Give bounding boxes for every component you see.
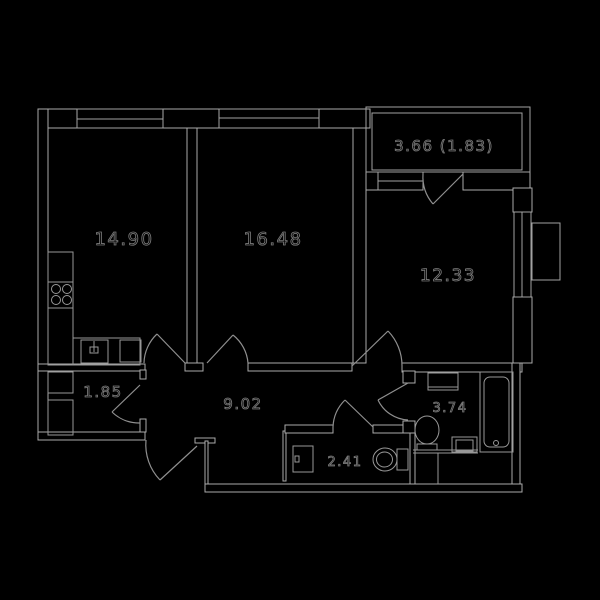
label-wc: 2.41 — [328, 455, 363, 470]
wall-right-mid — [513, 297, 532, 363]
wall-right-upper — [513, 188, 532, 212]
door-bathroom — [378, 383, 408, 420]
label-bedroom-2: 12.33 — [420, 266, 476, 286]
bathtub-icon — [480, 372, 513, 452]
exterior-ledge — [532, 223, 560, 280]
dishwasher-icon — [120, 340, 141, 362]
washing-machine-icon — [293, 446, 313, 472]
wall-hall-top-right — [402, 363, 522, 372]
door-balcony — [423, 174, 463, 204]
wall-hall-top-mid — [248, 363, 352, 371]
wall-top-right — [319, 109, 370, 128]
wall-bath-stub-lower — [403, 421, 415, 433]
kitchen-sink-icon — [81, 340, 108, 363]
label-bathroom: 3.74 — [433, 401, 468, 416]
label-hallway: 9.02 — [223, 395, 262, 413]
wall-storage-right-upper — [140, 370, 146, 379]
wall-top-mid — [163, 109, 219, 128]
wall-bedroom-bedroom2 — [353, 128, 366, 363]
label-bedroom: 16.48 — [243, 229, 302, 250]
label-kitchen-living-room: 14.90 — [94, 229, 153, 250]
stove-icon — [52, 285, 72, 305]
door-entry — [146, 440, 197, 480]
wall-bath-stub-upper — [403, 371, 415, 383]
wall-left-outer — [38, 109, 48, 440]
window-kitchen — [77, 119, 163, 128]
wall-wc-left — [205, 441, 208, 484]
wall-kitchen-bedroom — [187, 128, 197, 363]
wall-bottom — [205, 484, 522, 492]
wall-storage-bottom — [38, 432, 145, 440]
wall-balcony-right-seg — [463, 172, 530, 190]
wall-hall-top-stub — [185, 363, 203, 371]
walls — [38, 109, 532, 492]
floor-plan-drawing: 14.90 16.48 12.33 3.66 (1.83) 1.85 9.02 … — [0, 0, 600, 600]
wall-wc-top-left — [285, 425, 333, 433]
wall-balcony-left-seg — [366, 172, 378, 190]
door-bedroom — [207, 335, 248, 363]
door-kitchen — [144, 334, 185, 363]
windows — [77, 107, 560, 297]
label-balcony: 3.66 (1.83) — [394, 137, 494, 155]
window-bedroom — [219, 118, 319, 128]
floor-plan: 14.90 16.48 12.33 3.66 (1.83) 1.85 9.02 … — [0, 0, 600, 600]
label-storage: 1.85 — [83, 383, 122, 401]
toilet-icon — [373, 448, 408, 471]
wall-wc-partial — [283, 431, 286, 481]
wall-storage-right-lower — [140, 419, 146, 432]
wardrobe-icon — [48, 372, 73, 435]
wall-wc-bath — [410, 433, 415, 484]
door-wc — [333, 400, 373, 427]
wash-basin-icon — [413, 416, 478, 484]
